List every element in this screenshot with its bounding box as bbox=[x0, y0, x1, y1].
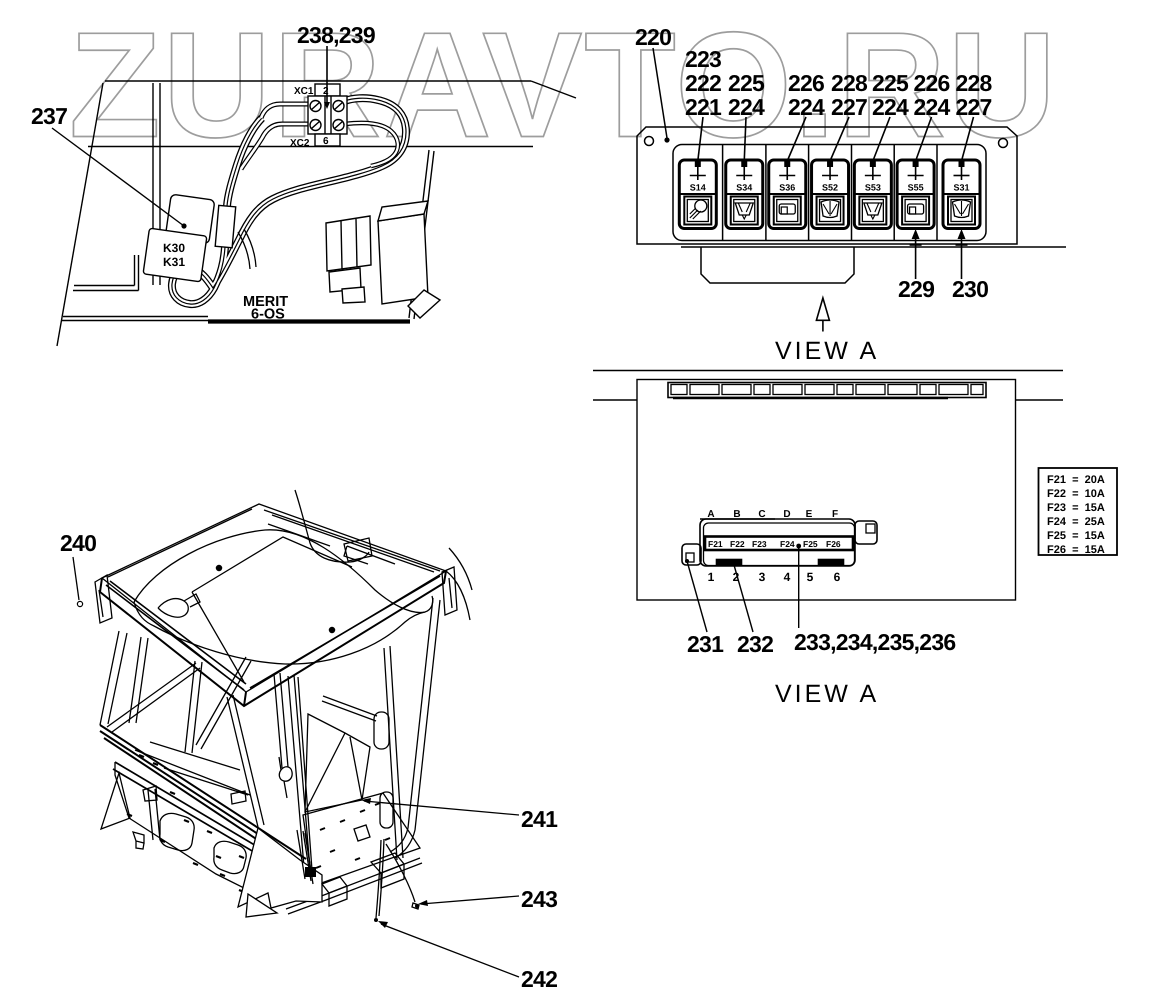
svg-text:6-OS: 6-OS bbox=[251, 307, 285, 323]
svg-text:F25: F25 bbox=[803, 539, 818, 549]
svg-text:225: 225 bbox=[872, 70, 909, 96]
svg-text:E: E bbox=[806, 509, 813, 520]
svg-text:231: 231 bbox=[687, 631, 724, 657]
svg-text:F: F bbox=[832, 509, 838, 520]
svg-text:F24: F24 bbox=[780, 539, 795, 549]
svg-text:F26: F26 bbox=[826, 539, 841, 549]
svg-text:S14: S14 bbox=[690, 183, 706, 193]
svg-text:227: 227 bbox=[831, 94, 867, 120]
svg-text:F22: F22 bbox=[730, 539, 745, 549]
svg-text:4: 4 bbox=[784, 570, 791, 584]
svg-text:6: 6 bbox=[323, 136, 329, 147]
svg-text:S31: S31 bbox=[953, 183, 969, 193]
svg-text:220: 220 bbox=[635, 24, 671, 50]
svg-text:223: 223 bbox=[685, 46, 721, 72]
svg-text:228: 228 bbox=[955, 70, 992, 96]
svg-text:241: 241 bbox=[521, 806, 558, 832]
svg-text:228: 228 bbox=[831, 70, 868, 96]
svg-text:230: 230 bbox=[952, 276, 988, 302]
svg-text:224: 224 bbox=[728, 94, 765, 120]
svg-text:K30: K30 bbox=[163, 241, 185, 255]
svg-text:F22 = 10A: F22 = 10A bbox=[1047, 488, 1105, 500]
svg-text:S34: S34 bbox=[736, 183, 752, 193]
svg-text:229: 229 bbox=[898, 276, 934, 302]
svg-text:226: 226 bbox=[913, 70, 949, 96]
svg-text:232: 232 bbox=[737, 631, 773, 657]
svg-text:233,234,235,236: 233,234,235,236 bbox=[794, 629, 955, 655]
svg-text:S52: S52 bbox=[822, 183, 838, 193]
svg-text:224: 224 bbox=[913, 94, 950, 120]
svg-text:F26 = 15A: F26 = 15A bbox=[1047, 544, 1105, 556]
svg-text:F24 = 25A: F24 = 25A bbox=[1047, 516, 1105, 528]
svg-text:VIEW A: VIEW A bbox=[775, 337, 879, 365]
svg-text:222: 222 bbox=[685, 70, 721, 96]
svg-text:221: 221 bbox=[685, 94, 722, 120]
svg-text:S36: S36 bbox=[779, 183, 795, 193]
svg-text:VIEW A: VIEW A bbox=[775, 680, 879, 708]
svg-text:224: 224 bbox=[872, 94, 909, 120]
svg-text:D: D bbox=[783, 509, 790, 520]
svg-text:226: 226 bbox=[788, 70, 824, 96]
svg-text:237: 237 bbox=[31, 103, 67, 129]
svg-text:F23: F23 bbox=[752, 539, 767, 549]
svg-text:F21 = 20A: F21 = 20A bbox=[1047, 474, 1105, 486]
svg-text:224: 224 bbox=[788, 94, 825, 120]
svg-text:238,239: 238,239 bbox=[297, 22, 375, 48]
svg-text:6: 6 bbox=[834, 570, 841, 584]
svg-text:5: 5 bbox=[807, 570, 814, 584]
svg-text:XC2: XC2 bbox=[290, 138, 310, 149]
svg-text:K31: K31 bbox=[163, 255, 185, 269]
svg-text:S53: S53 bbox=[865, 183, 881, 193]
svg-text:225: 225 bbox=[728, 70, 765, 96]
svg-text:1: 1 bbox=[708, 570, 715, 584]
svg-text:S55: S55 bbox=[908, 183, 924, 193]
svg-text:F21: F21 bbox=[708, 539, 723, 549]
svg-text:XC1: XC1 bbox=[294, 86, 314, 97]
svg-text:227: 227 bbox=[955, 94, 991, 120]
svg-text:242: 242 bbox=[521, 966, 557, 992]
svg-text:F23 = 15A: F23 = 15A bbox=[1047, 502, 1105, 514]
svg-text:2: 2 bbox=[323, 86, 329, 97]
svg-text:F25 = 15A: F25 = 15A bbox=[1047, 530, 1105, 542]
svg-text:243: 243 bbox=[521, 886, 557, 912]
svg-text:3: 3 bbox=[759, 570, 766, 584]
svg-text:240: 240 bbox=[60, 530, 96, 556]
